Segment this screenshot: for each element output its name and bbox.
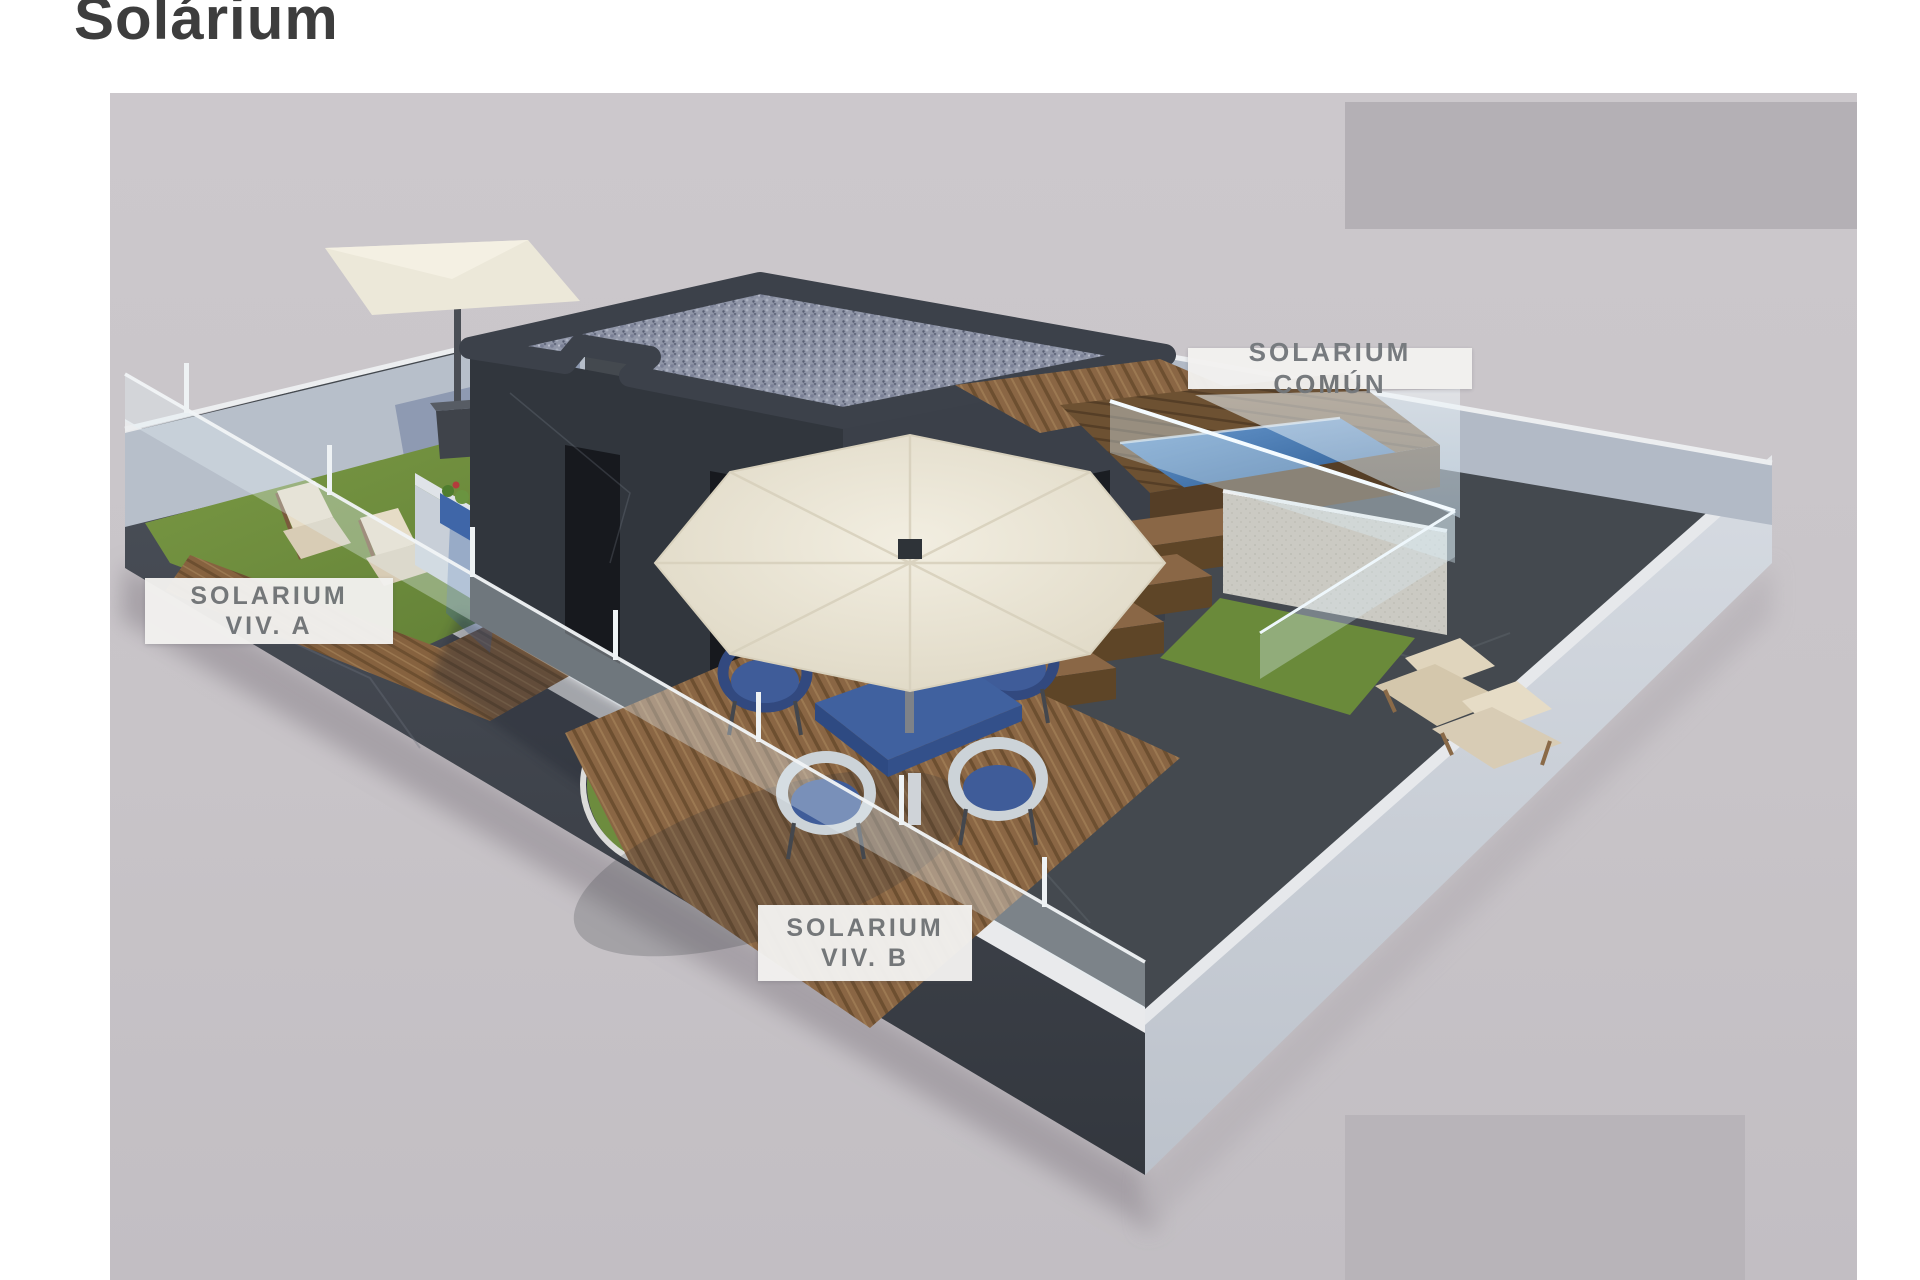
table-leg: [908, 773, 921, 825]
page-title: Solárium: [74, 0, 339, 53]
solarium-render: SOLARIUM VIV. A SOLARIUM COMÚN SOLARIUM …: [110, 93, 1857, 1280]
label-line: VIV. B: [821, 943, 909, 974]
solarium-3d-scene: [110, 93, 1857, 1280]
umbrella-finial: [898, 539, 922, 559]
label-line: SOLARIUM: [190, 581, 347, 612]
label-solarium-comun: SOLARIUM COMÚN: [1188, 348, 1472, 389]
label-line: SOLARIUM COMÚN: [1188, 337, 1472, 400]
label-line: SOLARIUM: [786, 913, 943, 944]
label-solarium-viv-a: SOLARIUM VIV. A: [145, 578, 393, 644]
label-solarium-viv-b: SOLARIUM VIV. B: [758, 905, 972, 981]
label-line: VIV. A: [225, 611, 312, 642]
